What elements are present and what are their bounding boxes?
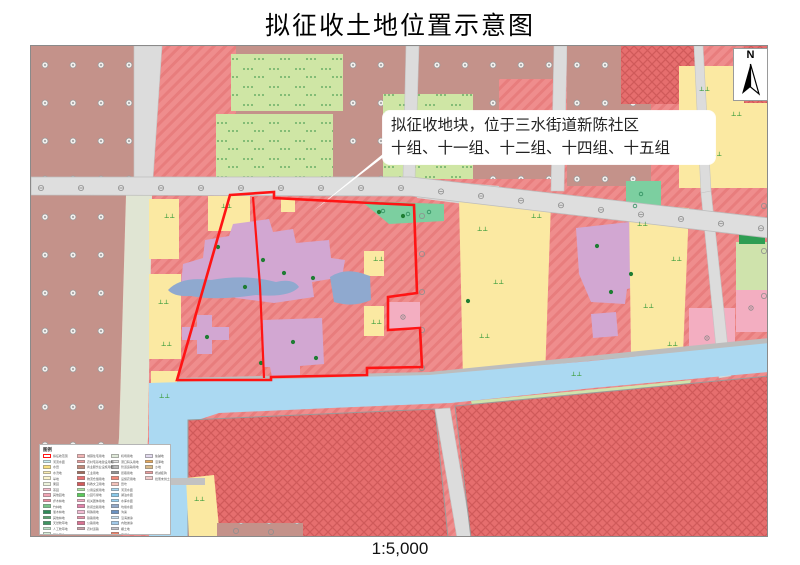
legend-label: 机场用地	[121, 453, 133, 458]
legend-swatch	[111, 516, 119, 520]
legend-swatch	[77, 471, 85, 475]
legend-label: 乔木林地	[53, 498, 65, 503]
legend: 图例 拟征收范围河流水面水田水浇地旱地果园茶园其他园地乔木林地竹林地灌木林地其他…	[39, 444, 171, 535]
legend-swatch	[77, 460, 85, 464]
legend-swatch	[77, 465, 85, 469]
legend-swatch	[145, 460, 153, 464]
legend-swatch	[43, 465, 51, 469]
parcel-redhatch-top	[499, 79, 561, 113]
page: 拟征收土地位置示意图	[0, 0, 800, 565]
svg-text:⊥⊥: ⊥⊥	[479, 333, 490, 340]
svg-text:⊥⊥: ⊥⊥	[164, 213, 175, 220]
legend-swatch	[43, 516, 51, 520]
legend-label: 工业用地	[87, 470, 99, 475]
svg-text:⊥⊥: ⊥⊥	[637, 221, 648, 228]
legend-label: 商业服务业设施用地	[87, 465, 113, 470]
legend-swatch	[111, 532, 119, 535]
legend-label: 科教文卫用地	[87, 481, 105, 486]
legend-label: 其他草地	[53, 532, 65, 535]
svg-text:⊥⊥: ⊥⊥	[571, 371, 582, 378]
legend-label: 农村道路	[87, 526, 99, 531]
north-label: N	[734, 49, 767, 62]
legend-label: 灌木林地	[53, 509, 65, 514]
legend-swatch	[145, 465, 153, 469]
legend-label: 拟征收范围	[53, 453, 68, 458]
svg-text:⊥⊥: ⊥⊥	[161, 341, 172, 348]
page-title: 拟征收土地位置示意图	[0, 6, 800, 42]
legend-swatch	[43, 476, 51, 480]
legend-swatch	[77, 476, 85, 480]
legend-label: 水田	[53, 465, 59, 470]
annotation-line1: 拟征收地块，位于三水街道新陈社区	[391, 114, 707, 137]
svg-text:⊥⊥: ⊥⊥	[699, 86, 710, 93]
legend-column: 机场用地港口码头用地管道运输用地街巷用地设施农用地田坎河流水面湖泊水面水库水面坑…	[111, 453, 145, 535]
legend-label: 坑塘水面	[121, 504, 133, 509]
legend-swatch	[77, 516, 85, 520]
legend-swatch	[77, 482, 85, 486]
legend-swatch	[111, 488, 119, 492]
svg-text:⊥⊥: ⊥⊥	[159, 393, 170, 400]
svg-text:⊥⊥: ⊥⊥	[477, 226, 488, 233]
legend-label: 竹林地	[53, 504, 62, 509]
legend-label: 街巷用地	[121, 470, 133, 475]
legend-swatch	[111, 454, 119, 458]
legend-swatch	[43, 488, 51, 492]
legend-swatch	[43, 493, 51, 497]
legend-label: 沿海滩涂	[121, 515, 133, 520]
svg-text:⊥⊥: ⊥⊥	[194, 496, 205, 503]
annotation-line2: 十组、十一组、十二组、十四组、十五组	[391, 137, 707, 160]
legend-label: 盐碱地	[155, 453, 164, 458]
legend-swatch	[111, 504, 119, 508]
legend-label: 旱地	[53, 476, 59, 481]
svg-text:⊥⊥: ⊥⊥	[643, 303, 654, 310]
legend-swatch	[43, 482, 51, 486]
parcel-paddy-2	[216, 114, 333, 179]
legend-item: 农村道路	[77, 526, 111, 532]
parcel-yellow-right1	[459, 198, 551, 380]
legend-swatch	[111, 493, 119, 497]
legend-swatch	[43, 532, 51, 535]
svg-text:⊥⊥: ⊥⊥	[158, 299, 169, 306]
legend-label: 港口码头用地	[121, 459, 139, 464]
legend-swatch	[43, 471, 51, 475]
svg-text:⊥⊥: ⊥⊥	[373, 256, 384, 263]
legend-label: 设施农用地	[121, 476, 136, 481]
legend-column: 盐碱地沼泽地沙地增减挂钩批而未供土地	[145, 453, 171, 535]
legend-label: 特殊用地	[87, 509, 99, 514]
parcel-paddy-1	[231, 54, 343, 111]
legend-label: 水浇地	[53, 470, 62, 475]
legend-swatch	[111, 521, 119, 525]
legend-label: 公用设施用地	[87, 487, 105, 492]
svg-text:⊥⊥: ⊥⊥	[667, 341, 678, 348]
legend-item: 批而未供土地	[145, 475, 171, 481]
legend-label: 河流水面	[53, 459, 65, 464]
parcel-brown-topleft	[31, 46, 134, 179]
annotation-callout: 拟征收地块，位于三水街道新陈社区 十组、十一组、十二组、十四组、十五组	[383, 111, 715, 164]
legend-swatch	[145, 454, 153, 458]
legend-swatch	[111, 510, 119, 514]
legend-label: 空闲地	[121, 532, 130, 535]
parcel-brown-left	[31, 195, 126, 438]
legend-swatch	[111, 499, 119, 503]
legend-swatch	[77, 454, 85, 458]
legend-label: 水库水面	[121, 498, 133, 503]
legend-label: 沙地	[155, 465, 161, 470]
legend-swatch	[43, 510, 51, 514]
parcel-brown-bottomstrip	[217, 523, 303, 537]
legend-label: 城镇住宅用地	[87, 453, 105, 458]
legend-label: 内陆滩涂	[121, 521, 133, 526]
legend-swatch	[43, 460, 51, 464]
legend-label: 裸土地	[121, 526, 130, 531]
legend-swatch	[77, 521, 85, 525]
legend-swatch	[145, 476, 153, 480]
legend-label: 铁路用地	[87, 515, 99, 520]
legend-label: 茶园	[53, 487, 59, 492]
parcel-pink-rightedge	[736, 290, 768, 332]
legend-item: 空闲地	[111, 531, 145, 535]
legend-swatch	[43, 527, 51, 531]
parcel-crosshatch-bottom-left	[188, 409, 448, 537]
legend-label: 公路用地	[87, 521, 99, 526]
legend-swatch	[77, 488, 85, 492]
legend-swatch	[111, 471, 119, 475]
legend-swatch	[77, 499, 85, 503]
legend-item: 其他草地	[43, 531, 77, 535]
legend-swatch	[43, 454, 51, 458]
legend-label: 其他园地	[53, 493, 65, 498]
legend-label: 农村宅基地建设用地	[87, 459, 113, 464]
legend-label: 增减挂钩	[155, 470, 167, 475]
legend-swatch	[111, 527, 119, 531]
legend-label: 新闻出版用地	[87, 504, 105, 509]
legend-swatch	[145, 471, 153, 475]
legend-label: 果园	[53, 481, 59, 486]
svg-text:⊥⊥: ⊥⊥	[493, 279, 504, 286]
legend-swatch	[77, 527, 85, 531]
legend-label: 物流仓储用地	[87, 476, 105, 481]
svg-text:⊥⊥: ⊥⊥	[371, 319, 382, 326]
legend-label: 湖泊水面	[121, 493, 133, 498]
legend-column: 城镇住宅用地农村宅基地建设用地商业服务业设施用地工业用地物流仓储用地科教文卫用地…	[77, 453, 111, 535]
svg-text:⊥⊥: ⊥⊥	[671, 256, 682, 263]
legend-label: 批而未供土地	[155, 476, 172, 481]
legend-label: 沟渠	[121, 509, 127, 514]
scale-label: 1:5,000	[0, 539, 800, 559]
legend-label: 天然牧草地	[53, 521, 68, 526]
legend-label: 沼泽地	[155, 459, 164, 464]
north-arrow-icon	[734, 62, 767, 98]
legend-title: 图例	[43, 447, 170, 452]
parcel-palegreen-right	[736, 242, 768, 290]
svg-text:⊥⊥: ⊥⊥	[731, 111, 742, 118]
legend-swatch	[43, 521, 51, 525]
legend-swatch	[77, 504, 85, 508]
legend-column: 拟征收范围河流水面水田水浇地旱地果园茶园其他园地乔木林地竹林地灌木林地其他林地天…	[43, 453, 77, 535]
legend-label: 公园与绿地	[87, 493, 102, 498]
legend-swatch	[77, 510, 85, 514]
legend-label: 河流水面	[121, 487, 133, 492]
north-arrow: N	[733, 48, 768, 101]
legend-swatch	[43, 499, 51, 503]
legend-label: 机关团体用地	[87, 498, 105, 503]
legend-swatch	[77, 493, 85, 497]
legend-label: 人工牧草地	[53, 526, 68, 531]
legend-swatch	[111, 476, 119, 480]
pier	[171, 478, 205, 485]
legend-label: 管道运输用地	[121, 465, 139, 470]
legend-swatch	[111, 482, 119, 486]
legend-swatch	[43, 504, 51, 508]
legend-label: 田坎	[121, 481, 127, 486]
legend-label: 其他林地	[53, 515, 65, 520]
svg-text:⊥⊥: ⊥⊥	[531, 213, 542, 220]
